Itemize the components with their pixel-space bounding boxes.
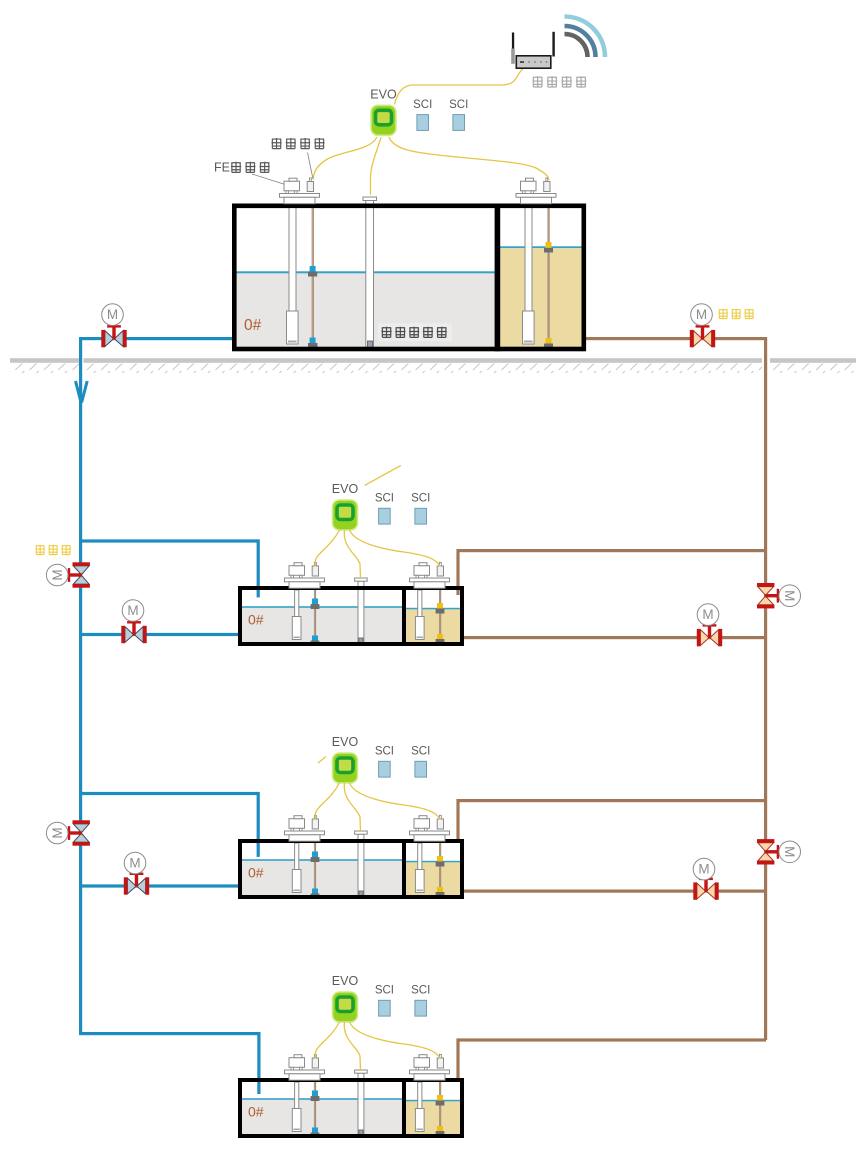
svg-text:FE: FE (214, 161, 230, 175)
svg-text:0#: 0# (244, 317, 262, 334)
